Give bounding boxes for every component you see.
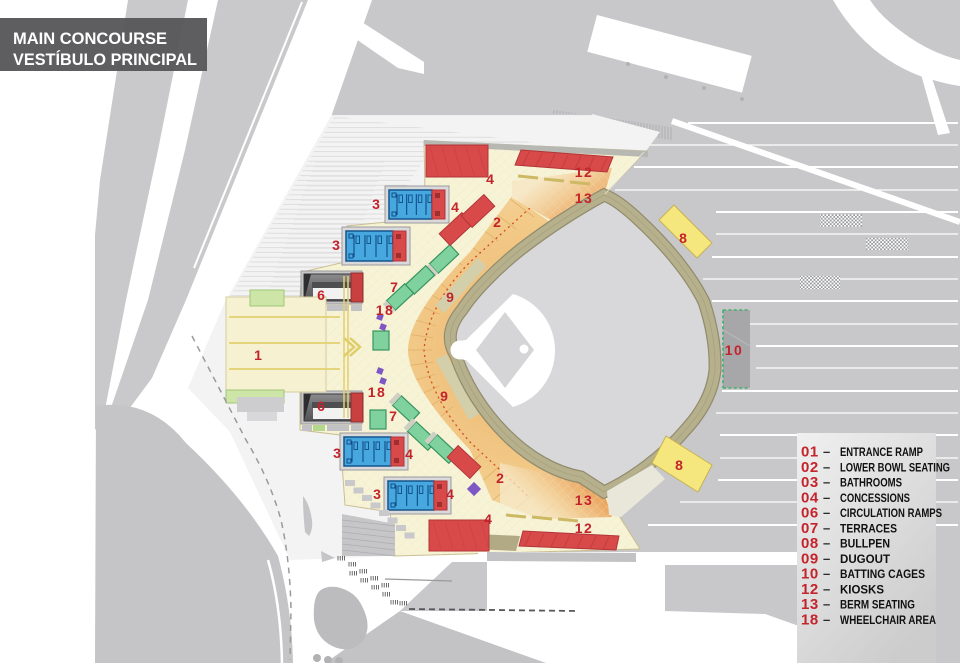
svg-text:KIOSKS: KIOSKS [840,584,884,596]
svg-text:13: 13 [575,492,594,508]
svg-text:–: – [823,612,830,627]
svg-text:–: – [823,490,830,505]
svg-text:–: – [823,597,830,612]
svg-text:10: 10 [725,342,744,358]
svg-text:ENTRANCE RAMP: ENTRANCE RAMP [840,447,923,459]
svg-text:–: – [823,505,830,520]
svg-text:CONCESSIONS: CONCESSIONS [840,493,910,505]
svg-text:LOWER BOWL SEATING: LOWER BOWL SEATING [840,462,950,474]
svg-text:3: 3 [373,486,381,502]
svg-text:8: 8 [675,457,683,473]
svg-text:4: 4 [451,199,459,215]
svg-text:6: 6 [317,287,325,303]
svg-text:4: 4 [484,511,492,527]
svg-text:–: – [823,536,830,551]
svg-text:DUGOUT: DUGOUT [840,554,890,566]
svg-text:2: 2 [496,470,504,486]
svg-text:–: – [823,520,830,535]
svg-text:12: 12 [575,164,594,180]
svg-text:3: 3 [372,196,380,212]
svg-text:7: 7 [389,408,397,424]
svg-text:–: – [823,581,830,596]
svg-text:BATHROOMS: BATHROOMS [840,478,902,490]
svg-text:–: – [823,444,830,459]
svg-text:VESTÍBULO PRINCIPAL: VESTÍBULO PRINCIPAL [13,50,197,69]
svg-text:4: 4 [486,171,494,187]
svg-text:–: – [823,459,830,474]
svg-text:2: 2 [493,214,501,230]
svg-text:BERM SEATING: BERM SEATING [840,600,915,612]
svg-text:–: – [823,551,830,566]
svg-text:BATTING CAGES: BATTING CAGES [840,569,925,581]
svg-text:BULLPEN: BULLPEN [840,539,890,551]
svg-text:18: 18 [368,384,387,400]
svg-text:9: 9 [440,388,448,404]
svg-text:6: 6 [317,398,325,414]
svg-text:–: – [823,475,830,490]
svg-text:–: – [823,566,830,581]
svg-text:18: 18 [376,302,395,318]
svg-text:7: 7 [390,279,398,295]
svg-text:3: 3 [332,237,340,253]
svg-text:13: 13 [575,190,594,206]
svg-text:WHEELCHAIR AREA: WHEELCHAIR AREA [840,615,936,627]
svg-text:12: 12 [575,520,594,536]
svg-text:MAIN CONCOURSE: MAIN CONCOURSE [13,29,167,48]
svg-text:4: 4 [446,486,454,502]
svg-text:CIRCULATION RAMPS: CIRCULATION RAMPS [840,508,942,520]
svg-text:TERRACES: TERRACES [840,523,897,535]
svg-text:3: 3 [333,445,341,461]
svg-text:8: 8 [679,230,687,246]
svg-text:4: 4 [405,446,413,462]
svg-text:9: 9 [446,289,454,305]
svg-text:1: 1 [254,347,262,363]
svg-text:18: 18 [801,611,819,628]
